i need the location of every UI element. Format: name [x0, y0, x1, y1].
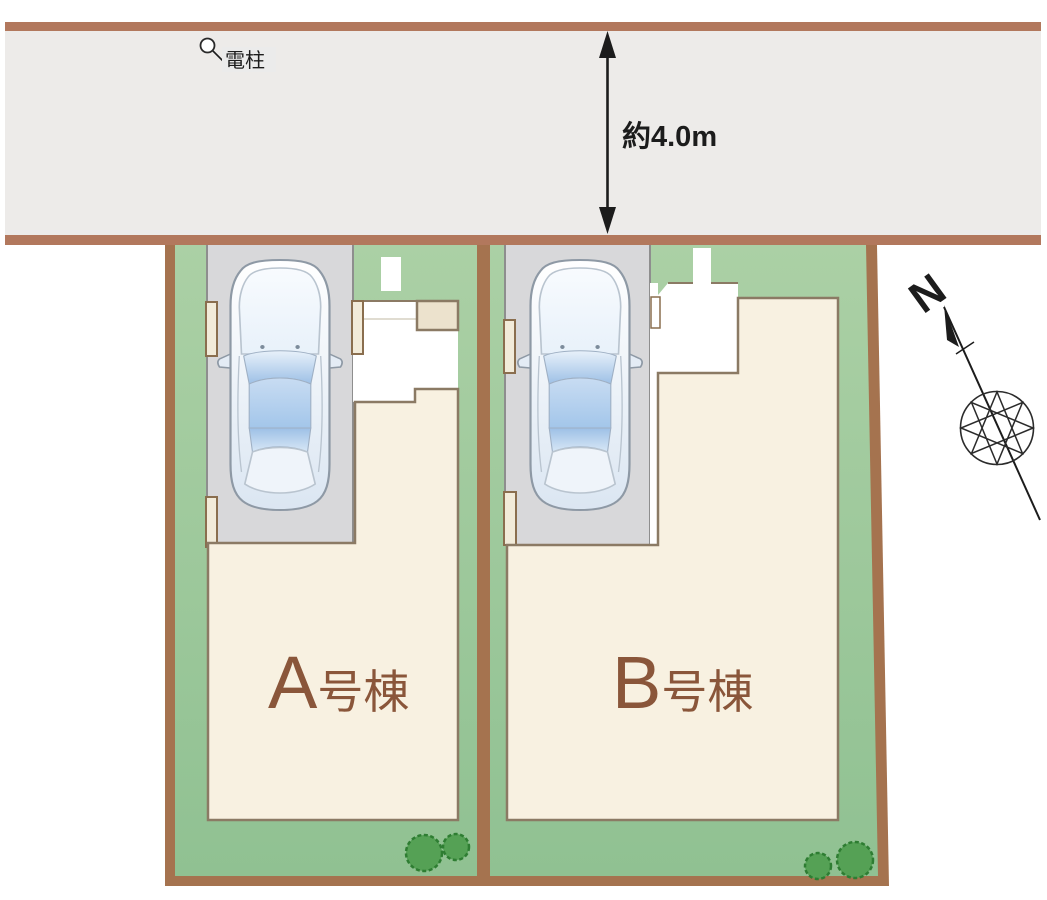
- lot-a-wall-segment-3: [352, 301, 363, 354]
- site-plan: 電柱 約4.0m A号棟: [0, 0, 1047, 900]
- lot-b: B号棟: [477, 245, 889, 886]
- lot-b-wall-segment-2: [504, 492, 516, 545]
- tree-icon: [837, 842, 873, 878]
- tree-icon: [805, 853, 831, 879]
- lot-a: A号棟: [165, 245, 490, 886]
- site-plan-drawing: 電柱 約4.0m A号棟: [0, 0, 1047, 900]
- compass-rose-icon: [961, 392, 1034, 465]
- tree-icon: [443, 834, 469, 860]
- lot-a-label-suffix: 号棟: [317, 666, 409, 718]
- lot-b-wall-segment-1: [504, 320, 515, 373]
- compass-needle: [944, 307, 1040, 520]
- lot-a-entrance-step: [417, 301, 458, 330]
- lot-b-label-suffix: 号棟: [661, 666, 753, 718]
- lot-b-car: [518, 260, 642, 510]
- lot-a-walkway: [381, 257, 401, 291]
- compass: N: [900, 264, 1040, 520]
- road-edge-bottom: [5, 235, 1041, 245]
- tree-icon: [406, 835, 442, 871]
- utility-pole-label: 電柱: [225, 49, 265, 72]
- road-width-label: 約4.0m: [622, 119, 717, 153]
- lot-b-walkway: [693, 248, 711, 284]
- road-surface: [5, 31, 1041, 235]
- road-edge-top: [5, 22, 1041, 31]
- lot-a-car: [218, 260, 342, 510]
- lot-b-porch: [658, 283, 738, 373]
- road: 電柱 約4.0m: [5, 22, 1041, 245]
- lot-a-label-letter: A: [268, 641, 318, 724]
- lot-a-wall-segment-2: [206, 497, 217, 547]
- lot-a-wall-segment-1: [206, 302, 217, 356]
- lot-b-label-letter: B: [612, 641, 661, 724]
- lot-b-porch-notch: [651, 297, 660, 328]
